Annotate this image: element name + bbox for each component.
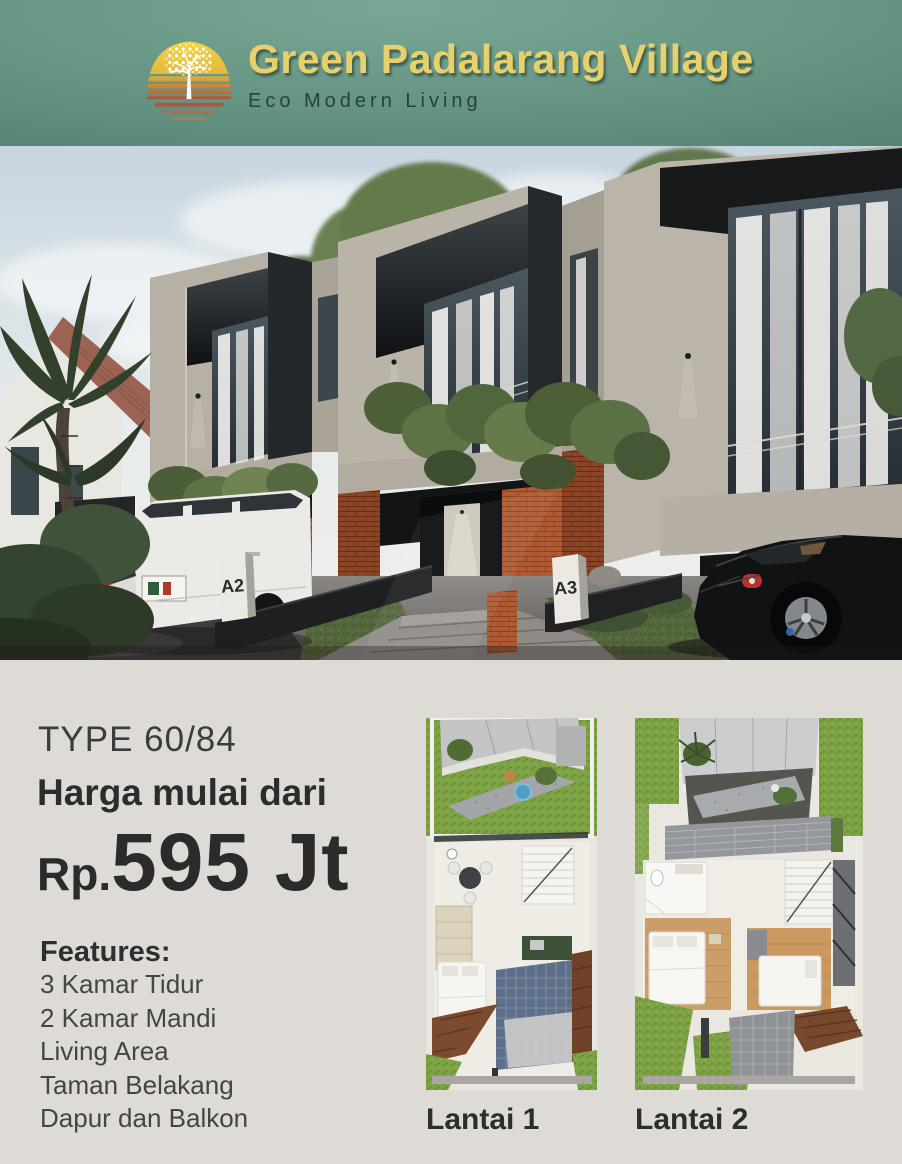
floorplan-lantai-2: Lantai 2 xyxy=(635,718,863,1137)
price-value: Rp.595 Jt xyxy=(37,816,350,910)
brand-title: Green Padalarang Village xyxy=(248,36,754,83)
header: Green Padalarang Village Eco Modern Livi… xyxy=(0,0,902,146)
feature-item: 3 Kamar Tidur xyxy=(40,968,248,1002)
plan-label-lantai-2: Lantai 2 xyxy=(635,1103,863,1137)
price-amount: 595 Jt xyxy=(111,816,350,910)
sun-tree-logo-icon xyxy=(141,20,237,128)
feature-item: Dapur dan Balkon xyxy=(40,1102,248,1136)
bottom-shadow xyxy=(0,646,902,660)
feature-item: Taman Belakang xyxy=(40,1069,248,1103)
info-section: TYPE 60/84 Harga mulai dari Rp.595 Jt Fe… xyxy=(0,660,902,1164)
unit-marker-a3: A3 xyxy=(553,577,577,599)
floorplan-lantai-1: Lantai 1 xyxy=(426,718,597,1137)
unit-sign-a2: A2 xyxy=(219,552,256,622)
property-photo: A2 A3 xyxy=(0,146,902,660)
house-type-label: TYPE 60/84 xyxy=(38,720,237,760)
flyer-page: Green Padalarang Village Eco Modern Livi… xyxy=(0,0,902,1164)
features-title: Features: xyxy=(40,936,171,969)
feature-item: Living Area xyxy=(40,1035,248,1069)
price-lead-text: Harga mulai dari xyxy=(37,772,327,814)
unit-marker-a2: A2 xyxy=(220,575,244,597)
brand-tagline: Eco Modern Living xyxy=(248,90,754,113)
features-list: 3 Kamar Tidur 2 Kamar Mandi Living Area … xyxy=(40,968,248,1136)
plan-label-lantai-1: Lantai 1 xyxy=(426,1103,597,1137)
price-currency: Rp. xyxy=(37,847,111,901)
feature-item: 2 Kamar Mandi xyxy=(40,1002,248,1036)
unit-sign-a3: A3 xyxy=(552,554,589,624)
